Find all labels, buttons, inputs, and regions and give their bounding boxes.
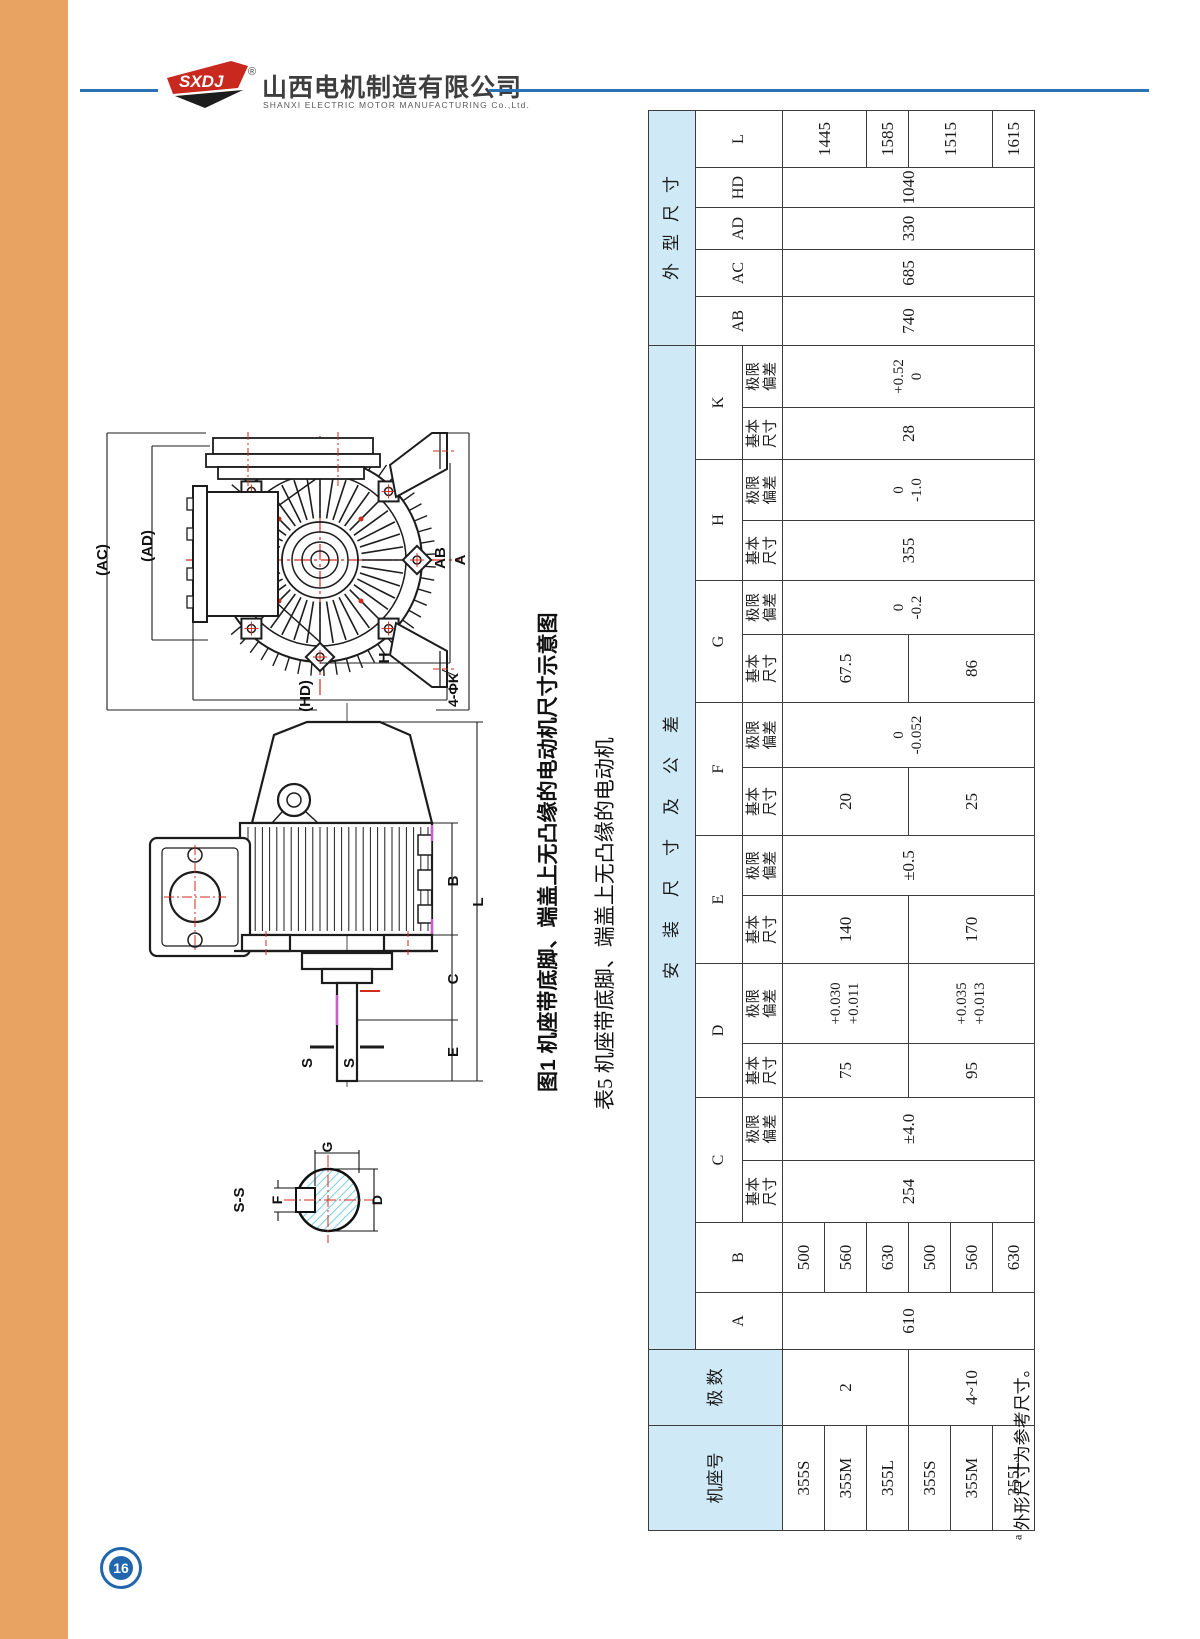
section-title: S-S (231, 1187, 248, 1212)
table-cell: 355M (825, 1426, 867, 1531)
table-cell: 630 (867, 1223, 909, 1293)
table-cell: 500 (783, 1223, 825, 1293)
dim-label-a: A (452, 554, 469, 565)
table-cell: 630 (993, 1223, 1035, 1293)
table-cell: A (696, 1293, 783, 1350)
table-cell: 1445 (783, 110, 867, 167)
table-cell: 355S (783, 1426, 825, 1531)
table-cell: 基本尺寸 (743, 896, 783, 964)
table-cell: 560 (825, 1223, 867, 1293)
dimension-table: 机座号极 数安装尺寸及公差外型尺寸ABCDEFGHKABACADHDL基本尺寸极… (648, 110, 1035, 1531)
company-name-cn: 山西电机制造有限公司 (262, 68, 522, 104)
table-cell: 140 (783, 896, 909, 964)
cover-plate-2 (206, 454, 380, 467)
table-header-cell: 安装尺寸及公差 (649, 346, 696, 1350)
dim-label-b: B (445, 875, 462, 886)
table-cell: 基本尺寸 (743, 1161, 783, 1223)
cover-plate-3 (218, 467, 364, 479)
dim-label-c: C (445, 973, 462, 984)
section-mark-s-left: S (299, 1058, 316, 1068)
shaft-shoulder (322, 969, 372, 983)
bearing-cap (302, 953, 392, 969)
motor-end-view-drawing: (AC) (AD) AB A H (HD) 4-ΦK (88, 408, 486, 723)
dim-label-f: F (269, 1195, 285, 1204)
table-cell: HD (696, 168, 783, 208)
page-edge-orange-bar (0, 0, 68, 1639)
dim-label-e: E (445, 1047, 462, 1057)
table-cell: +0.035+0.013 (909, 964, 1035, 1044)
dim-label-ac: (AC) (94, 544, 111, 576)
table-cell: 0-0.2 (783, 581, 1035, 635)
table-cell: 500 (909, 1223, 951, 1293)
table-cell: 极限偏差 (743, 836, 783, 896)
table-cell: 0-0.052 (783, 703, 1035, 768)
dim-label-d: D (369, 1195, 385, 1205)
table-cell: 1040 (783, 168, 1035, 208)
table-cell: 685 (783, 250, 1035, 297)
company-name-en: SHANXI ELECTRIC MOTOR MANUFACTURING Co.,… (263, 100, 530, 110)
dim-label-l: L (470, 897, 487, 906)
table-cell: 基本尺寸 (743, 1044, 783, 1098)
table-cell: 20 (783, 768, 909, 836)
motor-body (240, 823, 432, 935)
table-header-cell: 外型尺寸 (649, 110, 696, 345)
table-cell: ±0.5 (783, 836, 1035, 896)
table-cell: 极限偏差 (743, 964, 783, 1044)
table-cell: 67.5 (783, 635, 909, 703)
table-cell: F (696, 703, 743, 836)
table-cell: 28 (783, 408, 1035, 460)
table-cell: 254 (783, 1161, 1035, 1223)
table-cell: 25 (909, 768, 1035, 836)
table-cell: 极限偏差 (743, 581, 783, 635)
table-cell: 1585 (867, 110, 909, 167)
header-rule-left (80, 89, 158, 92)
table-cell: 740 (783, 297, 1035, 346)
foot-lower (390, 623, 447, 687)
dimension-table-wrapper: 机座号极 数安装尺寸及公差外型尺寸ABCDEFGHKABACADHDL基本尺寸极… (648, 113, 1037, 1531)
table-cell: 355L (867, 1426, 909, 1531)
motor-side-view-drawing: S S B C E L (122, 695, 492, 1095)
page-number: 16 (109, 1556, 133, 1580)
table-cell: 极限偏差 (743, 703, 783, 768)
sxdj-logo: SXDJ (163, 56, 251, 110)
table-caption: 表5 机座带底脚、端盖上无凸缘的电动机 (589, 737, 619, 1110)
dim-label-ad: (AD) (139, 530, 156, 562)
table-cell: AC (696, 250, 783, 297)
page-number-badge: 16 (100, 1547, 142, 1589)
cover-plate-1 (213, 438, 373, 454)
table-cell: 330 (783, 208, 1035, 250)
table-footnote: a 外形尺寸为参考尺寸。 (1008, 1360, 1033, 1540)
footnote-text: 外形尺寸为参考尺寸。 (1013, 1360, 1032, 1530)
table-cell: 基本尺寸 (743, 408, 783, 460)
table-cell: C (696, 1098, 743, 1223)
table-cell: +0.520 (783, 346, 1035, 408)
table-cell: +0.030+0.011 (783, 964, 909, 1044)
foot-upper (390, 433, 447, 497)
table-cell: L (696, 110, 783, 167)
logo-text: SXDJ (179, 72, 224, 91)
table-cell: 0-1.0 (783, 460, 1035, 521)
registered-mark: ® (248, 66, 256, 78)
table-cell: AD (696, 208, 783, 250)
dim-label-ab: AB (432, 547, 449, 569)
table-cell: D (696, 964, 743, 1098)
header-rule-right (489, 89, 1149, 92)
table-cell: 75 (783, 1044, 909, 1098)
table-cell: 极限偏差 (743, 460, 783, 521)
table-cell: G (696, 581, 743, 703)
table-cell: 基本尺寸 (743, 768, 783, 836)
table-cell: 610 (783, 1293, 1035, 1350)
table-cell: 基本尺寸 (743, 635, 783, 703)
table-cell: 355M (951, 1426, 993, 1531)
table-header-cell: 极 数 (649, 1350, 783, 1426)
dim-label-h: H (376, 653, 393, 664)
table-cell: 1615 (993, 110, 1035, 167)
table-cell: AB (696, 297, 783, 346)
dim-label-g: G (319, 1141, 335, 1152)
table-header-cell: 机座号 (649, 1426, 783, 1531)
table-cell: 560 (951, 1223, 993, 1293)
footnote-mark: a (1010, 1535, 1024, 1540)
table-cell: H (696, 460, 743, 581)
shaft-section-drawing: G F D S-S (212, 1095, 397, 1245)
table-cell: 基本尺寸 (743, 521, 783, 581)
table-cell: B (696, 1223, 783, 1293)
lifting-eye (278, 784, 310, 816)
figure-caption: 图1 机座带底脚、端盖上无凸缘的电动机尺寸示意图 (532, 612, 562, 1092)
table-cell: ±4.0 (783, 1098, 1035, 1161)
terminal-box-body (207, 492, 278, 616)
table-cell: K (696, 346, 743, 460)
table-cell: 95 (909, 1044, 1035, 1098)
table-cell: 极限偏差 (743, 1098, 783, 1161)
table-cell: 2 (783, 1350, 909, 1426)
table-cell: 355S (909, 1426, 951, 1531)
section-mark-s-right: S (341, 1058, 358, 1068)
table-cell: 86 (909, 635, 1035, 703)
table-cell: E (696, 836, 743, 964)
terminal-box-plate (193, 486, 207, 622)
table-cell: 极限偏差 (743, 346, 783, 408)
table-cell: 170 (909, 896, 1035, 964)
table-cell: 355 (783, 521, 1035, 581)
table-cell: 1515 (909, 110, 993, 167)
